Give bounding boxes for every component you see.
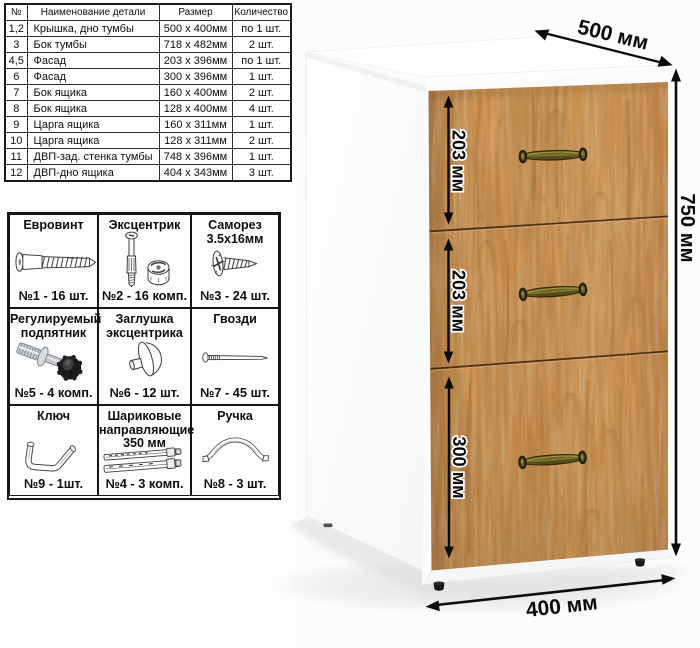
svg-text:203 мм: 203 мм [449, 270, 469, 332]
svg-text:300 мм: 300 мм [449, 436, 469, 498]
svg-text:750 мм: 750 мм [676, 193, 698, 262]
svg-text:203 мм: 203 мм [449, 130, 469, 192]
